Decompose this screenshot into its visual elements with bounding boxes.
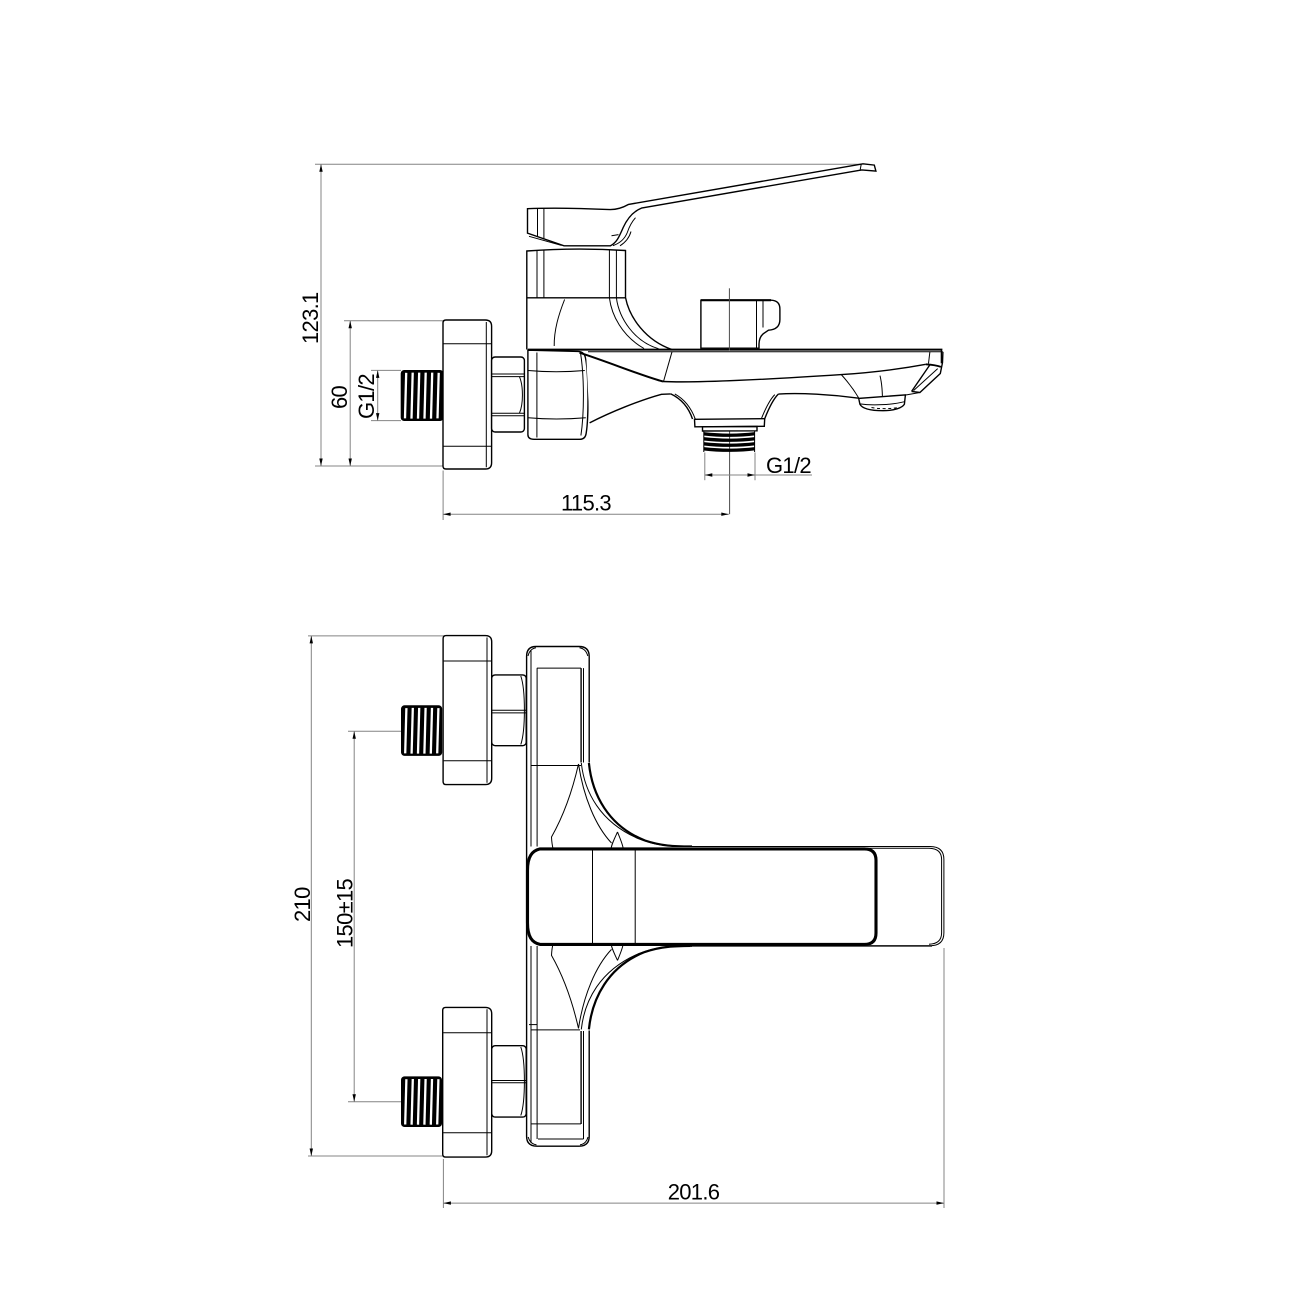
svg-text:60: 60 xyxy=(327,385,352,409)
svg-text:123.1: 123.1 xyxy=(298,292,323,344)
svg-text:G1/2: G1/2 xyxy=(766,453,811,478)
svg-text:150±15: 150±15 xyxy=(333,878,358,948)
svg-text:210: 210 xyxy=(290,887,315,922)
svg-text:115.3: 115.3 xyxy=(561,491,611,516)
svg-text:201.6: 201.6 xyxy=(668,1180,720,1205)
svg-text:G1/2: G1/2 xyxy=(354,374,379,419)
